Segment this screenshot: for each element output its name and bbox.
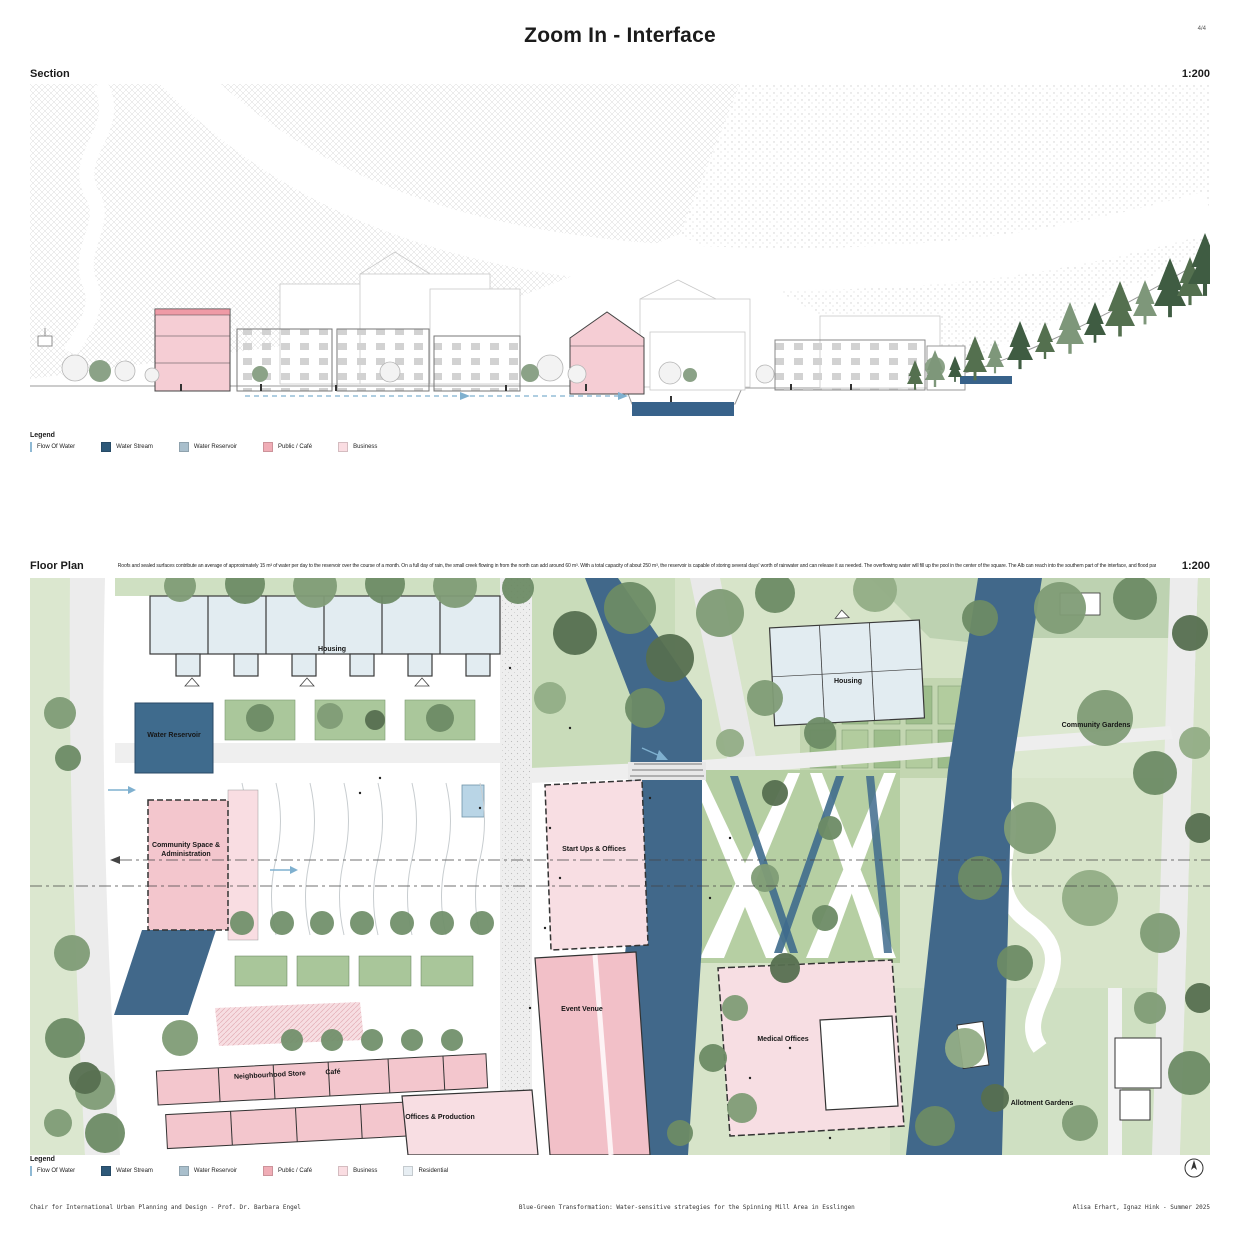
business-swatch	[338, 442, 348, 452]
section-scale: 1:200	[1182, 68, 1210, 80]
floorplan-panel-header: Floor Plan Roofs and sealed surfaces con…	[30, 560, 1210, 572]
start-ups-building	[545, 780, 648, 950]
plan-label-offices-production: Offices & Production	[392, 1114, 488, 1123]
water-stream-swatch	[101, 1166, 111, 1176]
legend-item-public-cafe: Public / Café	[263, 1166, 312, 1176]
legend-item-business: Business	[338, 1166, 377, 1176]
section-legend: Legend Flow Of Water Water Stream Water …	[30, 432, 403, 452]
public-cafe-swatch	[263, 442, 273, 452]
water-stream-swatch	[101, 442, 111, 452]
flow-of-water-swatch	[30, 1166, 32, 1176]
plan-label-community-space: Community Space & Administration	[146, 842, 226, 860]
plan-label-housing-left: Housing	[300, 646, 364, 655]
office-block-section	[775, 340, 925, 390]
footer-project-title: Blue-Green Transformation: Water-sensiti…	[301, 1204, 1073, 1211]
medical-courtyard	[820, 1016, 898, 1110]
floorplan-description: Roofs and sealed surfaces contribute an …	[118, 563, 1156, 569]
legend-item-water-stream: Water Stream	[101, 1166, 153, 1176]
footer-chair: Chair for International Urban Planning a…	[30, 1204, 301, 1211]
plan-label-housing-right: Housing	[816, 678, 880, 687]
floor-plan-drawing	[30, 578, 1210, 1155]
floorplan-title: Floor Plan	[30, 560, 84, 572]
section-panel-header: Section 1:200	[30, 68, 1210, 80]
page-number: 4/4	[1198, 26, 1206, 32]
residential-swatch	[403, 1166, 413, 1176]
public-building-section	[155, 309, 230, 391]
plan-label-community-gardens: Community Gardens	[1048, 722, 1144, 731]
apartment-block	[237, 329, 332, 391]
page-title: Zoom In - Interface	[0, 24, 1240, 48]
legend-item-water-stream: Water Stream	[101, 442, 153, 452]
floorplan-legend: Legend Flow Of Water Water Stream Water …	[30, 1156, 474, 1176]
legend-item-flow-of-water: Flow Of Water	[30, 442, 75, 452]
plan-label-allotment-gardens: Allotment Gardens	[994, 1100, 1090, 1109]
section-drawing	[30, 84, 1210, 430]
weir-bridge	[628, 762, 706, 780]
legend-item-public-cafe: Public / Café	[263, 442, 312, 452]
legend-item-water-reservoir: Water Reservoir	[179, 1166, 237, 1176]
legend-item-residential: Residential	[403, 1166, 448, 1176]
plan-label-event-venue: Event Venue	[546, 1006, 618, 1015]
public-cafe-swatch	[263, 1166, 273, 1176]
legend-item-business: Business	[338, 442, 377, 452]
legend-title: Legend	[30, 1156, 474, 1163]
plaza-pool	[462, 785, 484, 817]
footer-authors: Alisa Erhart, Ignaz Hink - Summer 2025	[1073, 1204, 1210, 1211]
water-pool	[632, 402, 734, 416]
flow-of-water-swatch	[30, 442, 32, 452]
water-reservoir-swatch	[179, 1166, 189, 1176]
presentation-board: Zoom In - Interface 4/4 Section 1:200	[0, 0, 1240, 1240]
north-arrow-icon	[1182, 1156, 1206, 1180]
footer: Chair for International Urban Planning a…	[30, 1204, 1210, 1211]
community-space-building	[148, 800, 228, 930]
event-venue-building	[535, 952, 650, 1155]
floorplan-scale: 1:200	[1182, 560, 1210, 572]
plan-label-medical-offices: Medical Offices	[738, 1036, 828, 1045]
business-swatch	[338, 1166, 348, 1176]
legend-item-flow-of-water: Flow Of Water	[30, 1166, 75, 1176]
plan-label-water-reservoir: Water Reservoir	[118, 732, 230, 741]
section-title: Section	[30, 68, 70, 80]
legend-title: Legend	[30, 432, 403, 439]
water-reservoir-swatch	[179, 442, 189, 452]
legend-item-water-reservoir: Water Reservoir	[179, 442, 237, 452]
water-pond	[960, 376, 1012, 384]
zigzag-rain-gardens	[685, 770, 900, 963]
plan-label-start-ups: Start Ups & Offices	[552, 846, 636, 855]
